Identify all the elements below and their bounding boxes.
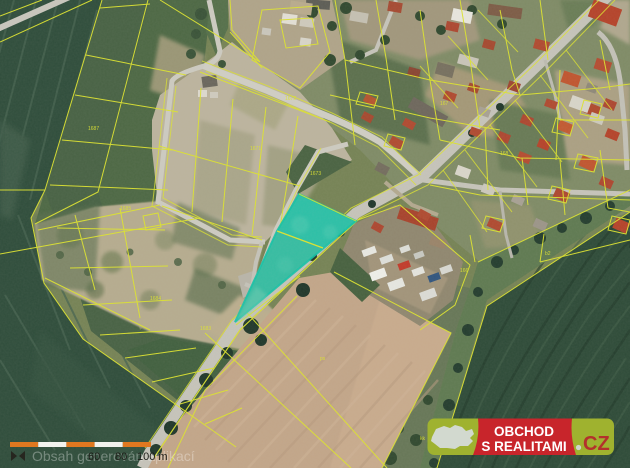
svg-text:60: 60: [88, 451, 100, 463]
svg-text:80: 80: [115, 451, 127, 463]
svg-text:OBCHOD: OBCHOD: [494, 424, 554, 439]
svg-text:S REALITAMI: S REALITAMI: [481, 439, 566, 454]
svg-text:100 m: 100 m: [137, 451, 168, 463]
svg-text:CZ: CZ: [583, 433, 610, 455]
svg-text:Obsah generován aplikací: Obsah generován aplikací: [32, 448, 195, 464]
